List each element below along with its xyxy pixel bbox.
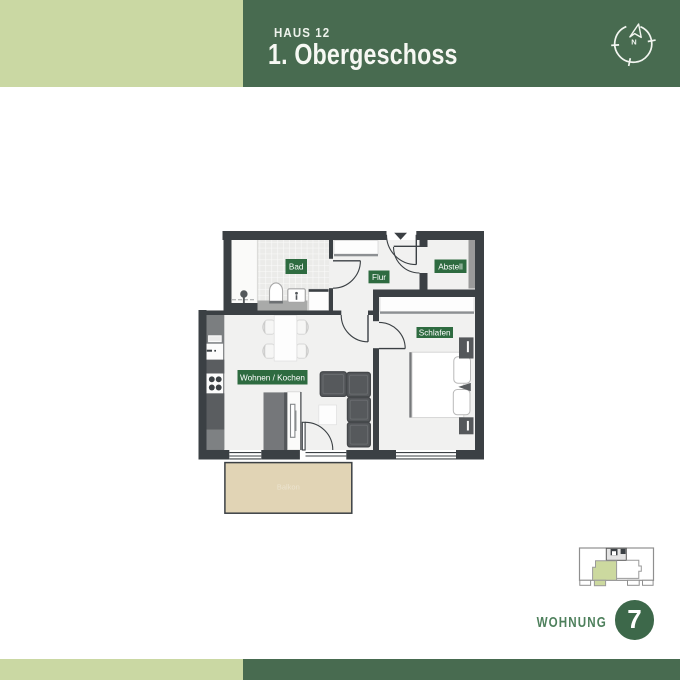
svg-text:Wohnen / Kochen: Wohnen / Kochen <box>240 373 305 382</box>
svg-text:Flur: Flur <box>372 273 386 282</box>
svg-text:Abstell: Abstell <box>438 262 463 271</box>
svg-text:Balkon: Balkon <box>277 483 300 492</box>
svg-text:Schlafen: Schlafen <box>419 328 451 337</box>
svg-text:Bad: Bad <box>289 262 304 271</box>
